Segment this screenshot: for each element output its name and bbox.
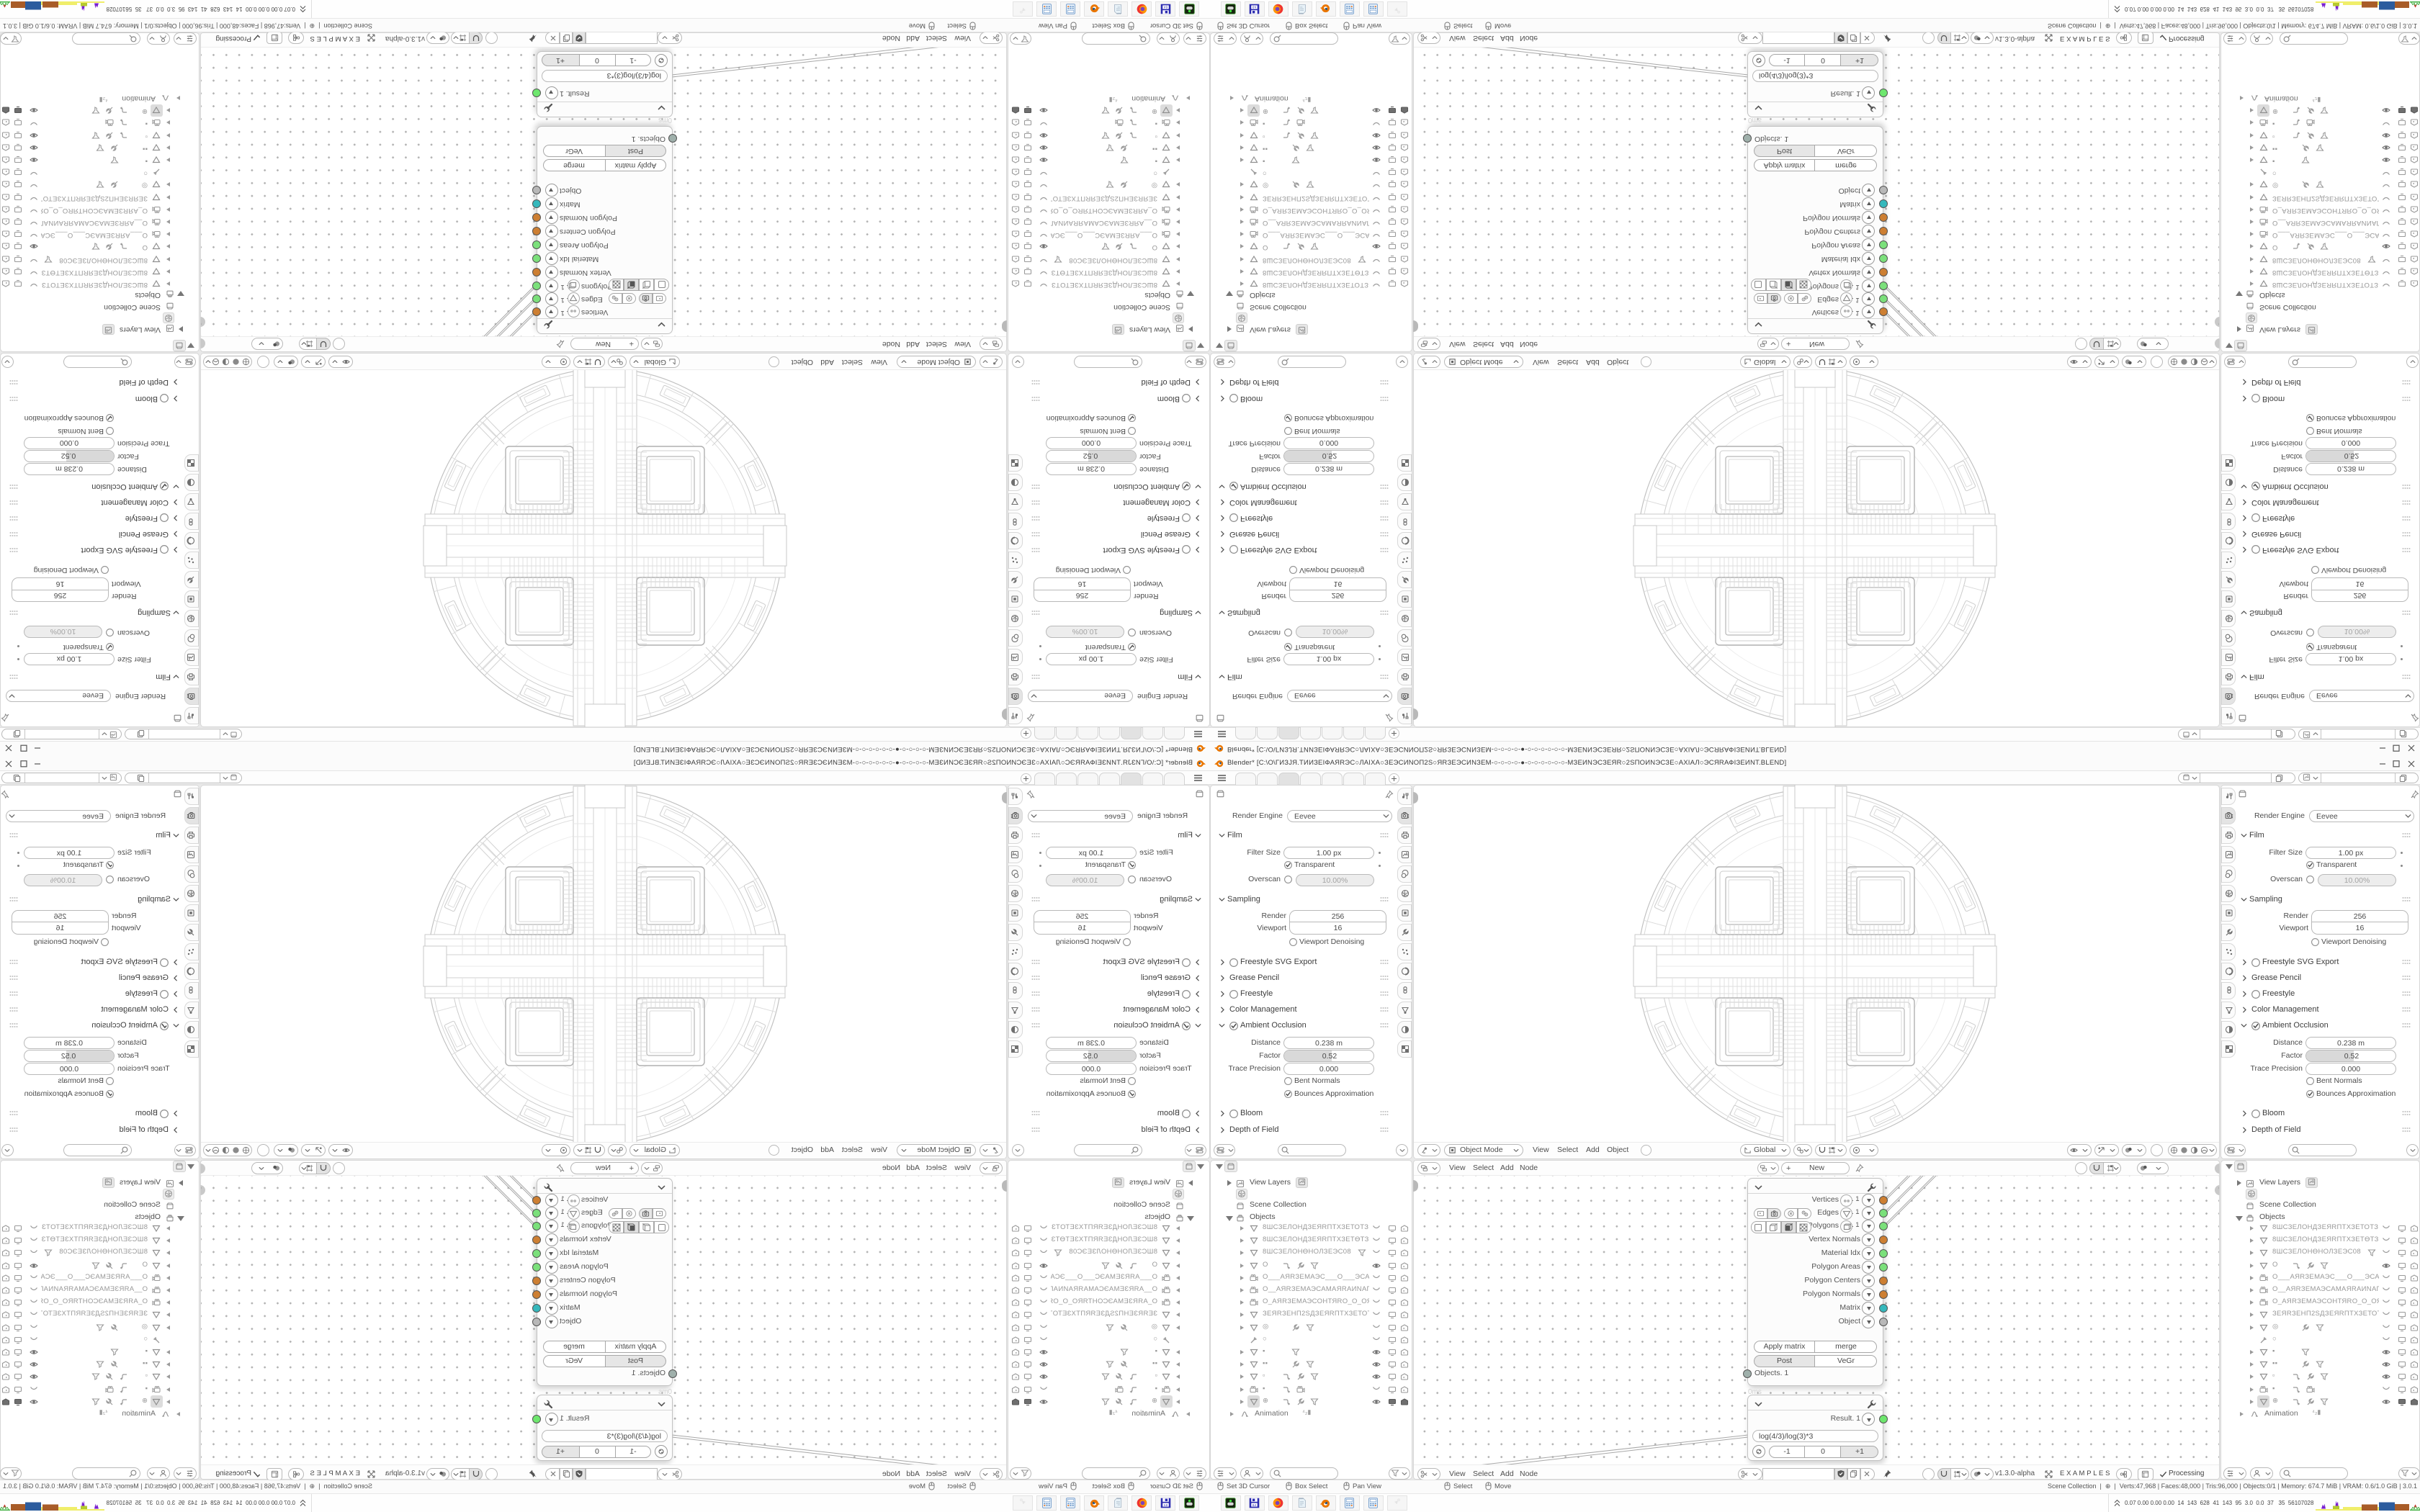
svg-text:64: 64 <box>1164 1503 1168 1507</box>
svg-text:64: 64 <box>1164 5 1168 9</box>
svg-text:64: 64 <box>1252 5 1257 9</box>
svg-text:64: 64 <box>1252 1503 1257 1507</box>
